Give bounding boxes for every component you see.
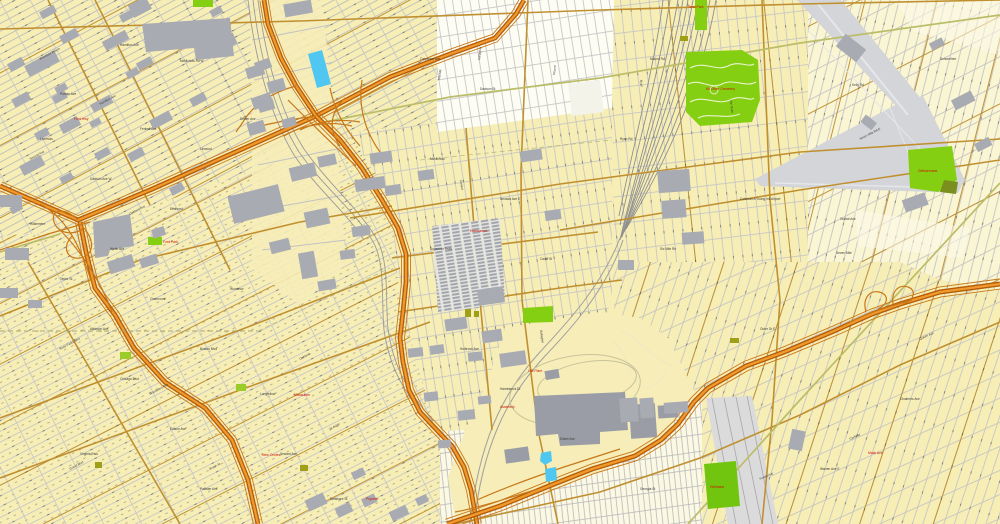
- svg-text:Davison Ave W: Davison Ave W: [90, 177, 112, 181]
- svg-text:Atkinson Ave: Atkinson Ave: [90, 327, 109, 331]
- svg-text:Nevada Ave E: Nevada Ave E: [500, 197, 520, 201]
- svg-text:Mt Olivet Cemetery: Mt Olivet Cemetery: [706, 87, 735, 91]
- svg-text:Livernois: Livernois: [40, 137, 53, 141]
- svg-text:Ford Park: Ford Park: [163, 240, 178, 244]
- svg-text:Ford Hwy: Ford Hwy: [74, 117, 89, 121]
- svg-text:Carpenter Ave: Carpenter Ave: [420, 57, 441, 61]
- svg-text:Six Mile Rd: Six Mile Rd: [660, 247, 676, 251]
- svg-text:Dexter Ave: Dexter Ave: [240, 117, 256, 121]
- svg-text:New Center: New Center: [262, 453, 281, 457]
- svg-text:Linwood: Linwood: [200, 147, 212, 151]
- svg-text:Edwin Ave: Edwin Ave: [560, 437, 575, 441]
- svg-text:Mound Rd: Mound Rd: [650, 57, 665, 61]
- svg-text:Pallister Ave: Pallister Ave: [200, 487, 218, 491]
- svg-text:Delaware St: Delaware St: [330, 497, 347, 501]
- svg-text:Milwaukee: Milwaukee: [294, 393, 310, 397]
- svg-text:McNichols: McNichols: [430, 157, 445, 161]
- svg-text:Puritan Ave: Puritan Ave: [60, 92, 76, 96]
- svg-text:Holbrook Ave: Holbrook Ave: [460, 347, 479, 351]
- svg-text:Piquette: Piquette: [366, 497, 379, 501]
- svg-text:Longfellow: Longfellow: [260, 392, 276, 396]
- svg-text:GM Plant: GM Plant: [528, 369, 542, 373]
- svg-text:Ryan Rd: Ryan Rd: [620, 137, 633, 141]
- svg-text:Fenkell Ave: Fenkell Ave: [140, 127, 157, 131]
- svg-text:Wildemere: Wildemere: [30, 222, 45, 226]
- svg-text:Hamtramck: Hamtramck: [470, 229, 488, 233]
- svg-text:Heilmann: Heilmann: [710, 485, 724, 489]
- svg-text:Assembly: Assembly: [500, 405, 515, 409]
- svg-text:Kelly Rd: Kelly Rd: [852, 83, 864, 87]
- svg-text:Mack Ave: Mack Ave: [868, 451, 883, 455]
- svg-text:Schoenherr: Schoenherr: [940, 57, 957, 61]
- svg-text:Gratiot Ave: Gratiot Ave: [840, 217, 856, 221]
- svg-text:Taylor St: Taylor St: [60, 277, 73, 281]
- svg-text:Ryan: Ryan: [639, 80, 644, 88]
- svg-text:Boston Blvd: Boston Blvd: [200, 347, 217, 351]
- svg-text:Seward Ave: Seward Ave: [280, 452, 297, 456]
- svg-text:Clairmount: Clairmount: [150, 297, 166, 301]
- svg-text:Chicago Blvd: Chicago Blvd: [120, 377, 139, 381]
- svg-text:Coleman A Young Intl Airport: Coleman A Young Intl Airport: [740, 197, 781, 201]
- svg-text:Hamilton Ave: Hamilton Ave: [120, 43, 139, 47]
- svg-text:Woodrow: Woodrow: [230, 287, 244, 291]
- svg-text:Chalmers Ave: Chalmers Ave: [900, 397, 920, 401]
- svg-text:Trest Park: Trest Park: [688, 5, 704, 9]
- svg-text:Hamtramck Dr: Hamtramck Dr: [500, 387, 521, 391]
- svg-text:Davison St: Davison St: [480, 87, 496, 91]
- svg-text:Gethsemane: Gethsemane: [918, 169, 938, 173]
- svg-text:Webb Ave: Webb Ave: [110, 247, 125, 251]
- svg-text:Virginia Park: Virginia Park: [80, 452, 98, 456]
- svg-text:Georgia St: Georgia St: [640, 487, 655, 491]
- svg-text:Elmhurst: Elmhurst: [170, 207, 183, 211]
- svg-text:McNichols Rd W: McNichols Rd W: [180, 59, 204, 63]
- svg-text:Seven Mile: Seven Mile: [836, 251, 852, 255]
- svg-text:Outer Dr E: Outer Dr E: [760, 327, 775, 331]
- svg-text:Sojourner Truth: Sojourner Truth: [430, 247, 452, 251]
- svg-text:Warren Ave E: Warren Ave E: [820, 467, 840, 471]
- svg-text:Caniff St: Caniff St: [540, 257, 552, 261]
- svg-text:Edison Ave: Edison Ave: [170, 427, 186, 431]
